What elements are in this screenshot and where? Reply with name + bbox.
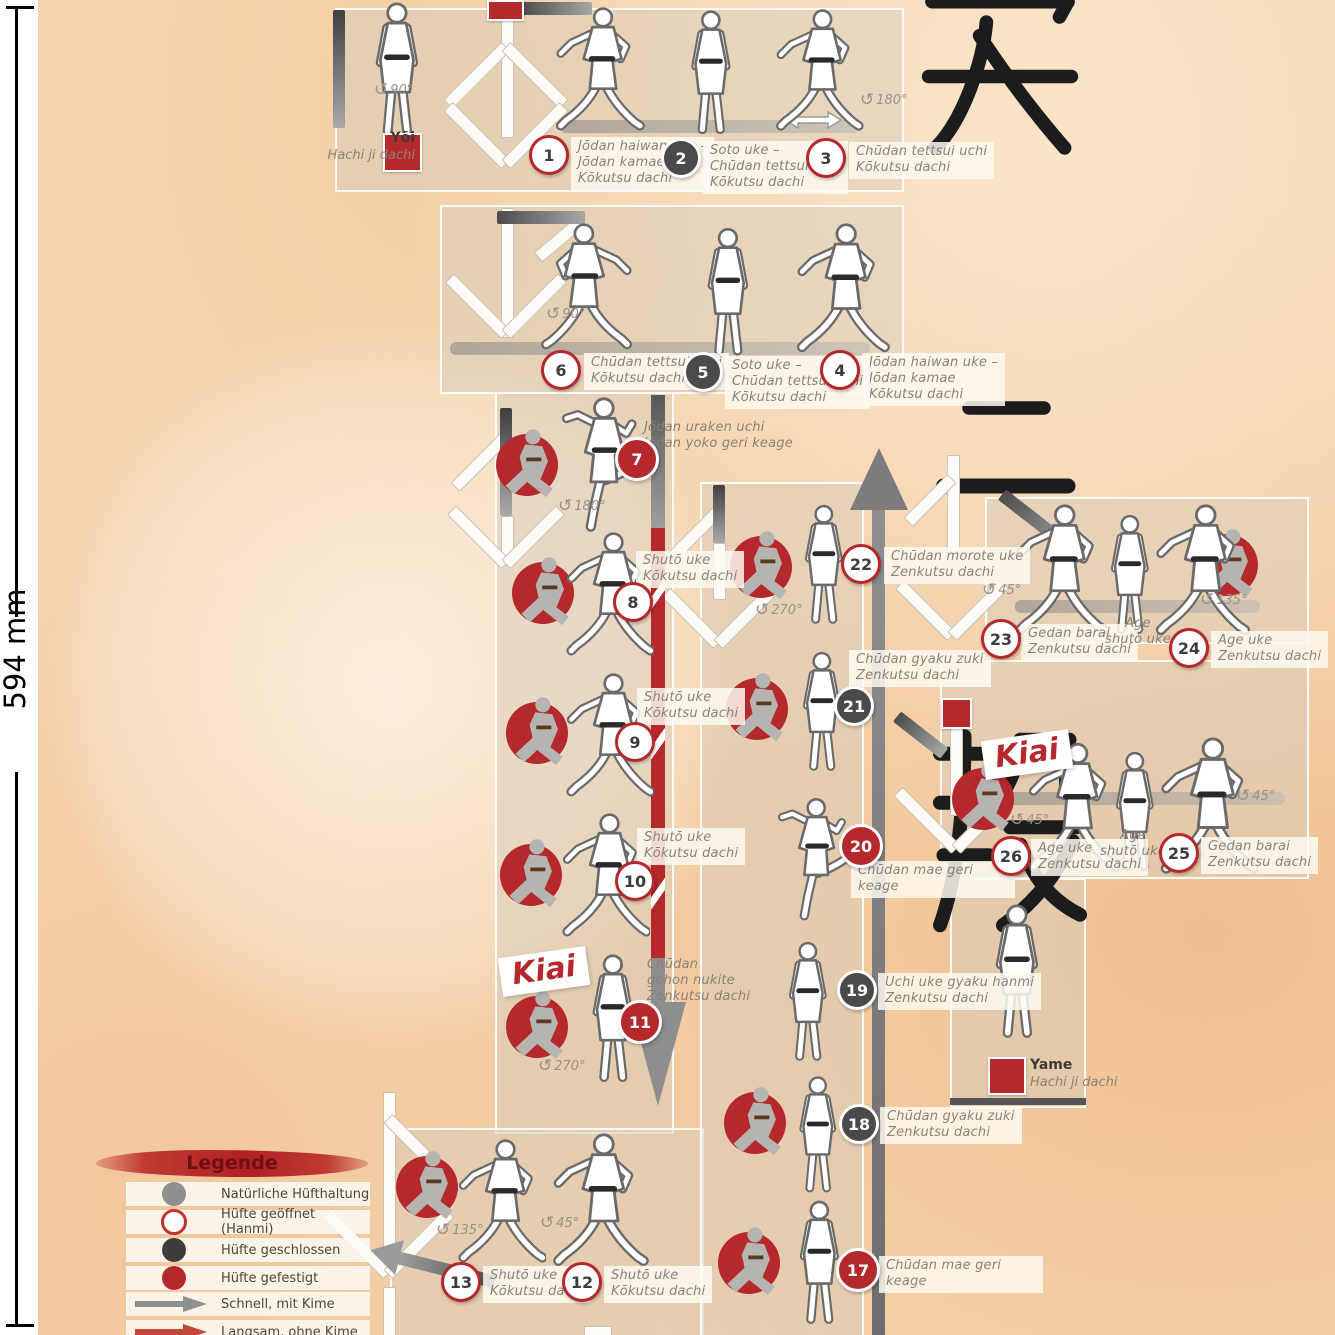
legend-item: Schnell, mit Kime	[126, 1292, 370, 1316]
ruler-tick-top	[6, 6, 34, 9]
red-arrow-icon	[126, 1324, 221, 1335]
ruler-label: 594 mm	[0, 574, 32, 724]
gray-arrow-icon	[126, 1296, 221, 1312]
step-marker-21: 21	[834, 686, 874, 726]
karateka-figure	[552, 6, 647, 138]
rotate-ccw-icon: ↺	[755, 600, 769, 620]
ruler-line	[15, 772, 18, 1324]
step-label-18: Chūdan gyaku zukiZenkutsu dachi	[880, 1107, 1022, 1144]
red-dot-icon	[126, 1266, 221, 1290]
rotate-ccw-icon: ↺	[1236, 786, 1250, 806]
legend-title: Legende	[96, 1152, 368, 1174]
rotation-badge: ↺90°	[546, 304, 585, 324]
open-dot-icon	[126, 1209, 221, 1235]
rotate-ccw-icon: ↺	[540, 1213, 554, 1233]
legend-item: Langsam, ohne Kime	[126, 1320, 370, 1335]
poster-canvas: Yōi Hachi ji dachi Yame Hachi ji dachi 1…	[38, 0, 1335, 1335]
step-marker-4: 4	[820, 350, 860, 390]
rotation-badge: ↺270°	[755, 600, 803, 620]
embusen-line	[584, 1326, 612, 1335]
step-marker-22: 22	[841, 544, 881, 584]
yame-marker-square	[988, 1057, 1026, 1095]
gray-accent-bar	[713, 485, 725, 543]
rotation-badge: ↺45°	[982, 580, 1021, 600]
step-label-25: Gedan baraiZenkutsu dachi	[1201, 837, 1318, 874]
step-marker-2: 2	[661, 138, 701, 178]
kata-poster: 594 mm	[0, 0, 1335, 1335]
step-label-19: Uchi uke gyaku hanmiZenkutsu dachi	[878, 973, 1041, 1010]
step-marker-3: 3	[806, 138, 846, 178]
rotation-badge: ↺135°	[436, 1220, 484, 1240]
yame-baseline	[950, 1098, 1086, 1105]
legend-item: Hüfte geöffnet (Hanmi)	[126, 1210, 370, 1234]
dimension-ruler: 594 mm	[0, 0, 38, 1335]
step-marker-5: 5	[683, 352, 723, 392]
step-label-4: Jōdan haiwan uke –Jōdan kamaeKōkutsu dac…	[862, 353, 1005, 406]
step-marker-24: 24	[1169, 628, 1209, 668]
rotation-badge: ↺180°	[558, 496, 606, 516]
rotate-ccw-icon: ↺	[436, 1220, 450, 1240]
step-label-22: Chūdan morote ukeZenkutsu dachi	[884, 547, 1030, 584]
karateka-figure	[540, 222, 635, 357]
karateka-figure	[458, 1134, 546, 1274]
rotate-ccw-icon: ↺	[1010, 810, 1024, 830]
step-label-3: Chūdan tettsui uchiKōkutsu dachi	[849, 142, 994, 179]
step-marker-6: 6	[541, 350, 581, 390]
karateka-figure	[795, 222, 890, 360]
start-marker-square	[487, 0, 524, 21]
step-label-17: Chūdan mae geri keage	[879, 1256, 1043, 1293]
step-label-24: Age ukeZenkutsu dachi	[1211, 631, 1328, 668]
step-label-12: Shutō ukeKōkutsu dachi	[604, 1266, 712, 1303]
step-marker-18: 18	[839, 1104, 879, 1144]
step-marker-11: 11	[618, 1000, 662, 1044]
rotation-badge: ↺180°	[860, 90, 908, 110]
karateka-figure	[766, 928, 848, 1078]
step-label-7: Jōdan uraken uchiJōdan yoko geri keage	[637, 418, 800, 455]
step-marker-23: 23	[981, 619, 1021, 659]
karateka-figure	[550, 1132, 650, 1274]
step-marker-17: 17	[836, 1248, 880, 1292]
legend-item: Natürliche Hüfthaltung	[126, 1182, 370, 1206]
turn-marker-square	[941, 698, 972, 729]
yoi-label: Yōi Hachi ji dachi	[300, 130, 415, 164]
step-label-8: Shutō ukeKōkutsu dachi	[636, 551, 744, 588]
rotate-ccw-icon: ↺	[538, 1056, 552, 1076]
up-arrow-stem	[872, 505, 885, 1335]
step-marker-25: 25	[1159, 833, 1199, 873]
step-marker-13: 13	[441, 1262, 481, 1302]
step-label-9: Shutō ukeKōkutsu dachi	[637, 688, 745, 725]
karateka-figure	[770, 8, 868, 138]
step-marker-19: 19	[837, 970, 877, 1010]
rotate-ccw-icon: ↺	[1200, 590, 1214, 610]
karateka-figure	[350, 2, 442, 140]
yame-label: Yame Hachi ji dachi	[1030, 1057, 1117, 1091]
legend-item: Hüfte gefestigt	[126, 1266, 370, 1290]
rotation-badge: ↺90°	[374, 80, 413, 100]
step-marker-20: 20	[839, 824, 883, 868]
dark-dot-icon	[126, 1238, 221, 1262]
embusen-line	[947, 455, 960, 552]
rotation-badge: ↺45°	[1010, 810, 1049, 830]
rotate-ccw-icon: ↺	[558, 496, 572, 516]
rotate-ccw-icon: ↺	[374, 80, 388, 100]
rotation-badge: ↺270°	[538, 1056, 586, 1076]
rotate-ccw-icon: ↺	[546, 304, 560, 324]
step-marker-1: 1	[529, 135, 569, 175]
step-label-11: Chūdangohon nukiteZenkutsu dachi	[640, 955, 757, 1008]
sub-label-age-shuto-uke: Ageshutō uke	[1098, 614, 1178, 651]
step-marker-26: 26	[991, 836, 1031, 876]
step-marker-9: 9	[615, 722, 655, 762]
rotate-ccw-icon: ↺	[860, 90, 874, 110]
step-label-10: Shutō ukeKōkutsu dachi	[637, 828, 745, 865]
rotation-badge: ↺45°	[540, 1213, 579, 1233]
karateka-figure	[683, 226, 771, 361]
rotate-ccw-icon: ↺	[982, 580, 996, 600]
step-marker-7: 7	[615, 437, 659, 481]
step-marker-12: 12	[562, 1262, 602, 1302]
rotation-badge: ↺45°	[1236, 786, 1275, 806]
ruler-tick-bottom	[6, 1324, 34, 1327]
step-label-21: Chūdan gyaku zukiZenkutsu dachi	[849, 650, 991, 687]
karateka-figure	[665, 10, 755, 138]
embusen-line	[383, 1287, 396, 1335]
gray-dot-icon	[126, 1182, 221, 1206]
legend-item: Hüfte geschlossen	[126, 1238, 370, 1262]
step-label-20: Chūdan mae geri keage	[851, 861, 1015, 898]
ruler-line	[15, 9, 18, 617]
gray-accent-bar	[333, 10, 345, 128]
embusen-line	[501, 14, 514, 138]
step-marker-10: 10	[615, 861, 655, 901]
rotation-badge: ↺135°	[1200, 590, 1248, 610]
step-marker-8: 8	[613, 582, 653, 622]
